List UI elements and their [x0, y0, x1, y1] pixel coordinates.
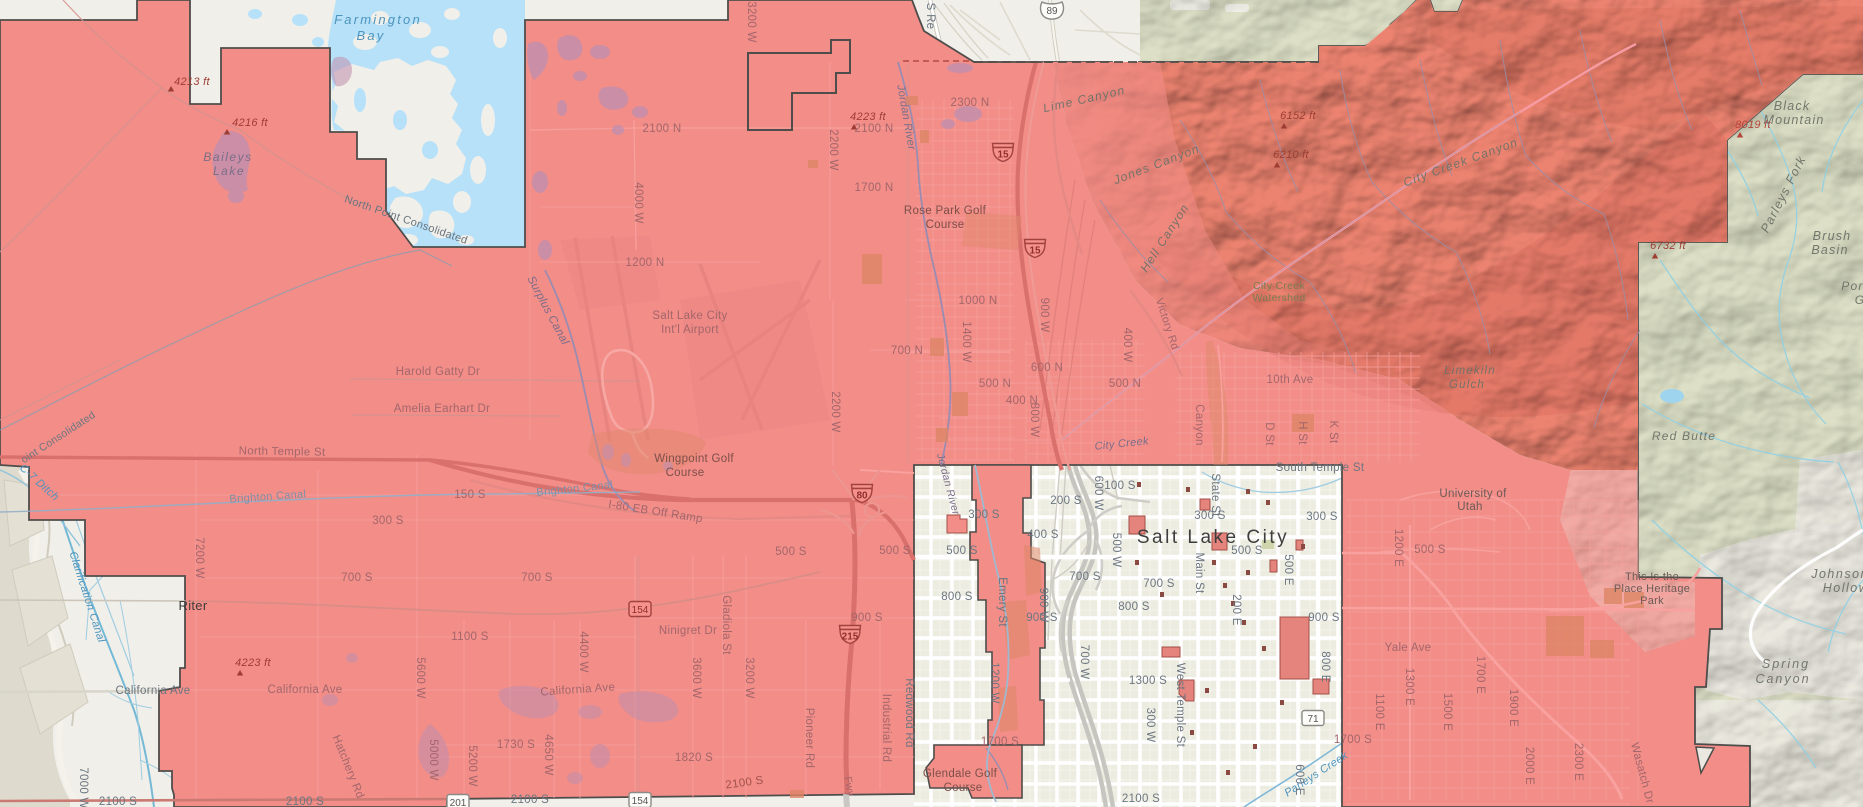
svg-text:1100 S: 1100 S	[451, 631, 488, 643]
svg-text:Course: Course	[944, 782, 983, 794]
svg-text:200 E: 200 E	[1230, 594, 1242, 626]
svg-text:400 W: 400 W	[1121, 328, 1133, 363]
svg-text:G: G	[1855, 293, 1863, 307]
svg-text:4213 ft: 4213 ft	[174, 76, 210, 88]
svg-text:Lake: Lake	[213, 164, 245, 178]
svg-text:4216 ft: 4216 ft	[232, 117, 268, 129]
svg-text:400 S: 400 S	[1027, 529, 1059, 541]
svg-text:80: 80	[856, 491, 868, 502]
svg-text:Industrial Rd: Industrial Rd	[880, 694, 892, 762]
svg-text:1700 E: 1700 E	[1474, 656, 1486, 694]
svg-text:500 N: 500 N	[1109, 378, 1141, 390]
svg-text:1000 N: 1000 N	[959, 295, 998, 307]
svg-text:Basin: Basin	[1811, 243, 1848, 257]
svg-text:1100 E: 1100 E	[1373, 693, 1385, 730]
svg-text:2100 N: 2100 N	[855, 123, 894, 135]
svg-text:600 N: 600 N	[1031, 362, 1063, 374]
svg-text:154: 154	[632, 605, 649, 616]
svg-text:3600 W: 3600 W	[690, 657, 702, 698]
svg-text:700 S: 700 S	[1143, 578, 1175, 590]
svg-text:3200 W: 3200 W	[743, 657, 755, 698]
svg-text:500 S: 500 S	[946, 545, 978, 557]
svg-text:4223 ft: 4223 ft	[850, 111, 886, 123]
svg-text:2300 N: 2300 N	[951, 97, 990, 109]
svg-text:Yale Ave: Yale Ave	[1385, 642, 1432, 654]
svg-text:15: 15	[997, 150, 1009, 161]
svg-text:800 S: 800 S	[1118, 601, 1150, 613]
svg-text:900 W: 900 W	[1038, 298, 1050, 333]
svg-text:1300 S: 1300 S	[1129, 675, 1167, 687]
svg-text:10th Ave: 10th Ave	[1267, 374, 1314, 386]
svg-text:2000 E: 2000 E	[1523, 747, 1535, 785]
svg-text:900 S: 900 S	[851, 612, 883, 624]
svg-text:900 W: 900 W	[1037, 588, 1049, 623]
svg-text:State St: State St	[1209, 473, 1221, 517]
svg-text:600 W: 600 W	[1092, 476, 1104, 511]
svg-text:1200 W: 1200 W	[988, 662, 1000, 703]
svg-text:5600 W: 5600 W	[414, 657, 426, 698]
svg-text:Int'l Airport: Int'l Airport	[661, 324, 719, 336]
svg-text:300 S: 300 S	[372, 515, 404, 527]
svg-text:1700 S: 1700 S	[1334, 734, 1372, 746]
svg-text:1820 S: 1820 S	[675, 752, 713, 764]
svg-text:2100 S: 2100 S	[286, 796, 324, 807]
svg-text:Brush: Brush	[1813, 229, 1852, 243]
svg-text:500 S: 500 S	[1231, 545, 1263, 557]
svg-text:Wingpoint Golf: Wingpoint Golf	[654, 453, 734, 465]
svg-text:Mountain: Mountain	[1763, 113, 1824, 127]
svg-text:California Ave: California Ave	[116, 685, 191, 697]
svg-text:K St: K St	[1327, 421, 1339, 444]
svg-text:Johnsons: Johnsons	[1810, 567, 1863, 581]
svg-text:500 W: 500 W	[1110, 533, 1122, 568]
svg-text:7000 W: 7000 W	[77, 767, 89, 807]
svg-text:Place Heritage: Place Heritage	[1614, 583, 1690, 595]
svg-text:Bay: Bay	[356, 28, 385, 43]
svg-text:California Ave: California Ave	[268, 684, 343, 696]
svg-text:200 S: 200 S	[1050, 495, 1082, 507]
svg-text:Spring: Spring	[1762, 657, 1810, 671]
svg-text:Glendale Golf: Glendale Golf	[923, 768, 998, 780]
svg-text:Hollow: Hollow	[1823, 581, 1863, 595]
svg-text:South Temple St: South Temple St	[1276, 462, 1365, 474]
svg-text:4000 W: 4000 W	[632, 182, 644, 223]
svg-text:500 S: 500 S	[879, 545, 911, 557]
svg-text:900 S: 900 S	[1308, 612, 1340, 624]
svg-text:6732 ft: 6732 ft	[1650, 240, 1686, 252]
svg-text:Rose Park Golf: Rose Park Golf	[904, 205, 987, 217]
svg-text:1200 N: 1200 N	[626, 257, 665, 269]
svg-text:500 S: 500 S	[1414, 544, 1446, 556]
svg-text:2100 S: 2100 S	[99, 796, 137, 807]
svg-text:Porc: Porc	[1841, 279, 1863, 293]
svg-text:7200 W: 7200 W	[193, 537, 205, 578]
svg-text:D St: D St	[1263, 422, 1275, 446]
svg-text:Black: Black	[1774, 99, 1811, 113]
svg-text:1900 E: 1900 E	[1507, 689, 1519, 727]
svg-text:1300 E: 1300 E	[1403, 668, 1415, 706]
svg-text:Riter: Riter	[179, 598, 208, 613]
svg-text:Baileys: Baileys	[203, 150, 252, 164]
svg-text:700 N: 700 N	[891, 345, 923, 357]
svg-text:Canyon: Canyon	[1193, 404, 1205, 445]
svg-text:71: 71	[1307, 714, 1319, 725]
svg-text:Amelia Earhart Dr: Amelia Earhart Dr	[394, 403, 491, 415]
svg-text:1700 S: 1700 S	[981, 736, 1019, 748]
svg-text:Pioneer Rd: Pioneer Rd	[803, 708, 815, 769]
svg-text:800 S: 800 S	[941, 591, 973, 603]
svg-text:Watershed: Watershed	[1252, 292, 1305, 304]
svg-text:2200 W: 2200 W	[827, 129, 839, 170]
svg-text:300 S: 300 S	[1306, 511, 1338, 523]
svg-text:West Temple St: West Temple St	[1174, 663, 1186, 748]
svg-text:Main St: Main St	[1193, 552, 1205, 594]
svg-text:4400 W: 4400 W	[577, 631, 589, 672]
svg-text:700 W: 700 W	[1078, 645, 1090, 680]
svg-text:150 S: 150 S	[454, 489, 486, 501]
svg-text:2100 S: 2100 S	[1122, 793, 1160, 805]
svg-text:Gulch: Gulch	[1449, 379, 1485, 391]
svg-text:4223 ft: 4223 ft	[235, 657, 271, 669]
svg-text:Park: Park	[1640, 595, 1664, 607]
svg-text:89: 89	[1046, 6, 1058, 17]
svg-text:University of: University of	[1439, 488, 1507, 500]
svg-text:North Temple St: North Temple St	[239, 445, 326, 459]
svg-text:500 N: 500 N	[979, 378, 1011, 390]
svg-text:2100 N: 2100 N	[643, 123, 682, 135]
svg-text:6210 ft: 6210 ft	[1273, 149, 1309, 161]
svg-text:Red Butte: Red Butte	[1652, 429, 1716, 443]
svg-text:154: 154	[632, 796, 649, 807]
svg-text:2200 W: 2200 W	[829, 391, 841, 432]
svg-text:1500 E: 1500 E	[1441, 693, 1453, 731]
svg-text:This Is the: This Is the	[1625, 571, 1679, 583]
svg-text:H St: H St	[1296, 421, 1308, 445]
svg-text:Course: Course	[666, 467, 705, 479]
svg-text:1200 E: 1200 E	[1392, 529, 1404, 567]
svg-text:500 S: 500 S	[775, 546, 807, 558]
svg-text:700 S: 700 S	[521, 572, 553, 584]
svg-text:Salt Lake City: Salt Lake City	[652, 310, 727, 322]
svg-text:Redwood Rd: Redwood Rd	[903, 678, 915, 747]
svg-text:Farmington: Farmington	[334, 12, 422, 27]
svg-text:Canyon: Canyon	[1755, 672, 1810, 686]
svg-text:Limekiln: Limekiln	[1444, 365, 1496, 377]
svg-text:2100 S: 2100 S	[511, 794, 549, 806]
svg-text:City Creek: City Creek	[1253, 280, 1305, 292]
svg-text:5200 W: 5200 W	[466, 745, 478, 786]
svg-text:500 E: 500 E	[1282, 554, 1294, 586]
svg-text:700 S: 700 S	[341, 572, 373, 584]
svg-text:5000 W: 5000 W	[427, 739, 439, 780]
svg-text:15: 15	[1029, 246, 1041, 257]
svg-text:1730 S: 1730 S	[497, 739, 535, 751]
svg-text:Salt Lake City: Salt Lake City	[1137, 527, 1289, 548]
svg-text:Gladiola St: Gladiola St	[720, 595, 732, 655]
svg-text:201: 201	[450, 798, 467, 807]
svg-text:600 E: 600 E	[1293, 764, 1305, 796]
svg-text:800 E: 800 E	[1319, 651, 1331, 683]
svg-text:1400 W: 1400 W	[960, 321, 972, 362]
svg-text:2300 E: 2300 E	[1572, 743, 1584, 781]
svg-text:4650 W: 4650 W	[542, 734, 554, 775]
svg-text:Harold Gatty Dr: Harold Gatty Dr	[396, 366, 480, 378]
svg-text:6152 ft: 6152 ft	[1280, 110, 1316, 122]
svg-text:800 W: 800 W	[1028, 403, 1040, 438]
svg-text:700 S: 700 S	[1069, 571, 1101, 583]
svg-text:1700 N: 1700 N	[855, 182, 894, 194]
svg-text:Emery St: Emery St	[996, 577, 1008, 627]
svg-text:Ninigret Dr: Ninigret Dr	[659, 625, 717, 637]
svg-text:3200 W: 3200 W	[745, 1, 757, 42]
svg-text:215: 215	[842, 632, 859, 643]
svg-text:Utah: Utah	[1457, 501, 1483, 513]
svg-text:300 S: 300 S	[968, 509, 1000, 521]
svg-text:Course: Course	[926, 219, 965, 231]
svg-text:300 W: 300 W	[1144, 708, 1156, 743]
svg-text:100 S: 100 S	[1104, 480, 1136, 492]
svg-text:S Re: S Re	[924, 3, 936, 30]
